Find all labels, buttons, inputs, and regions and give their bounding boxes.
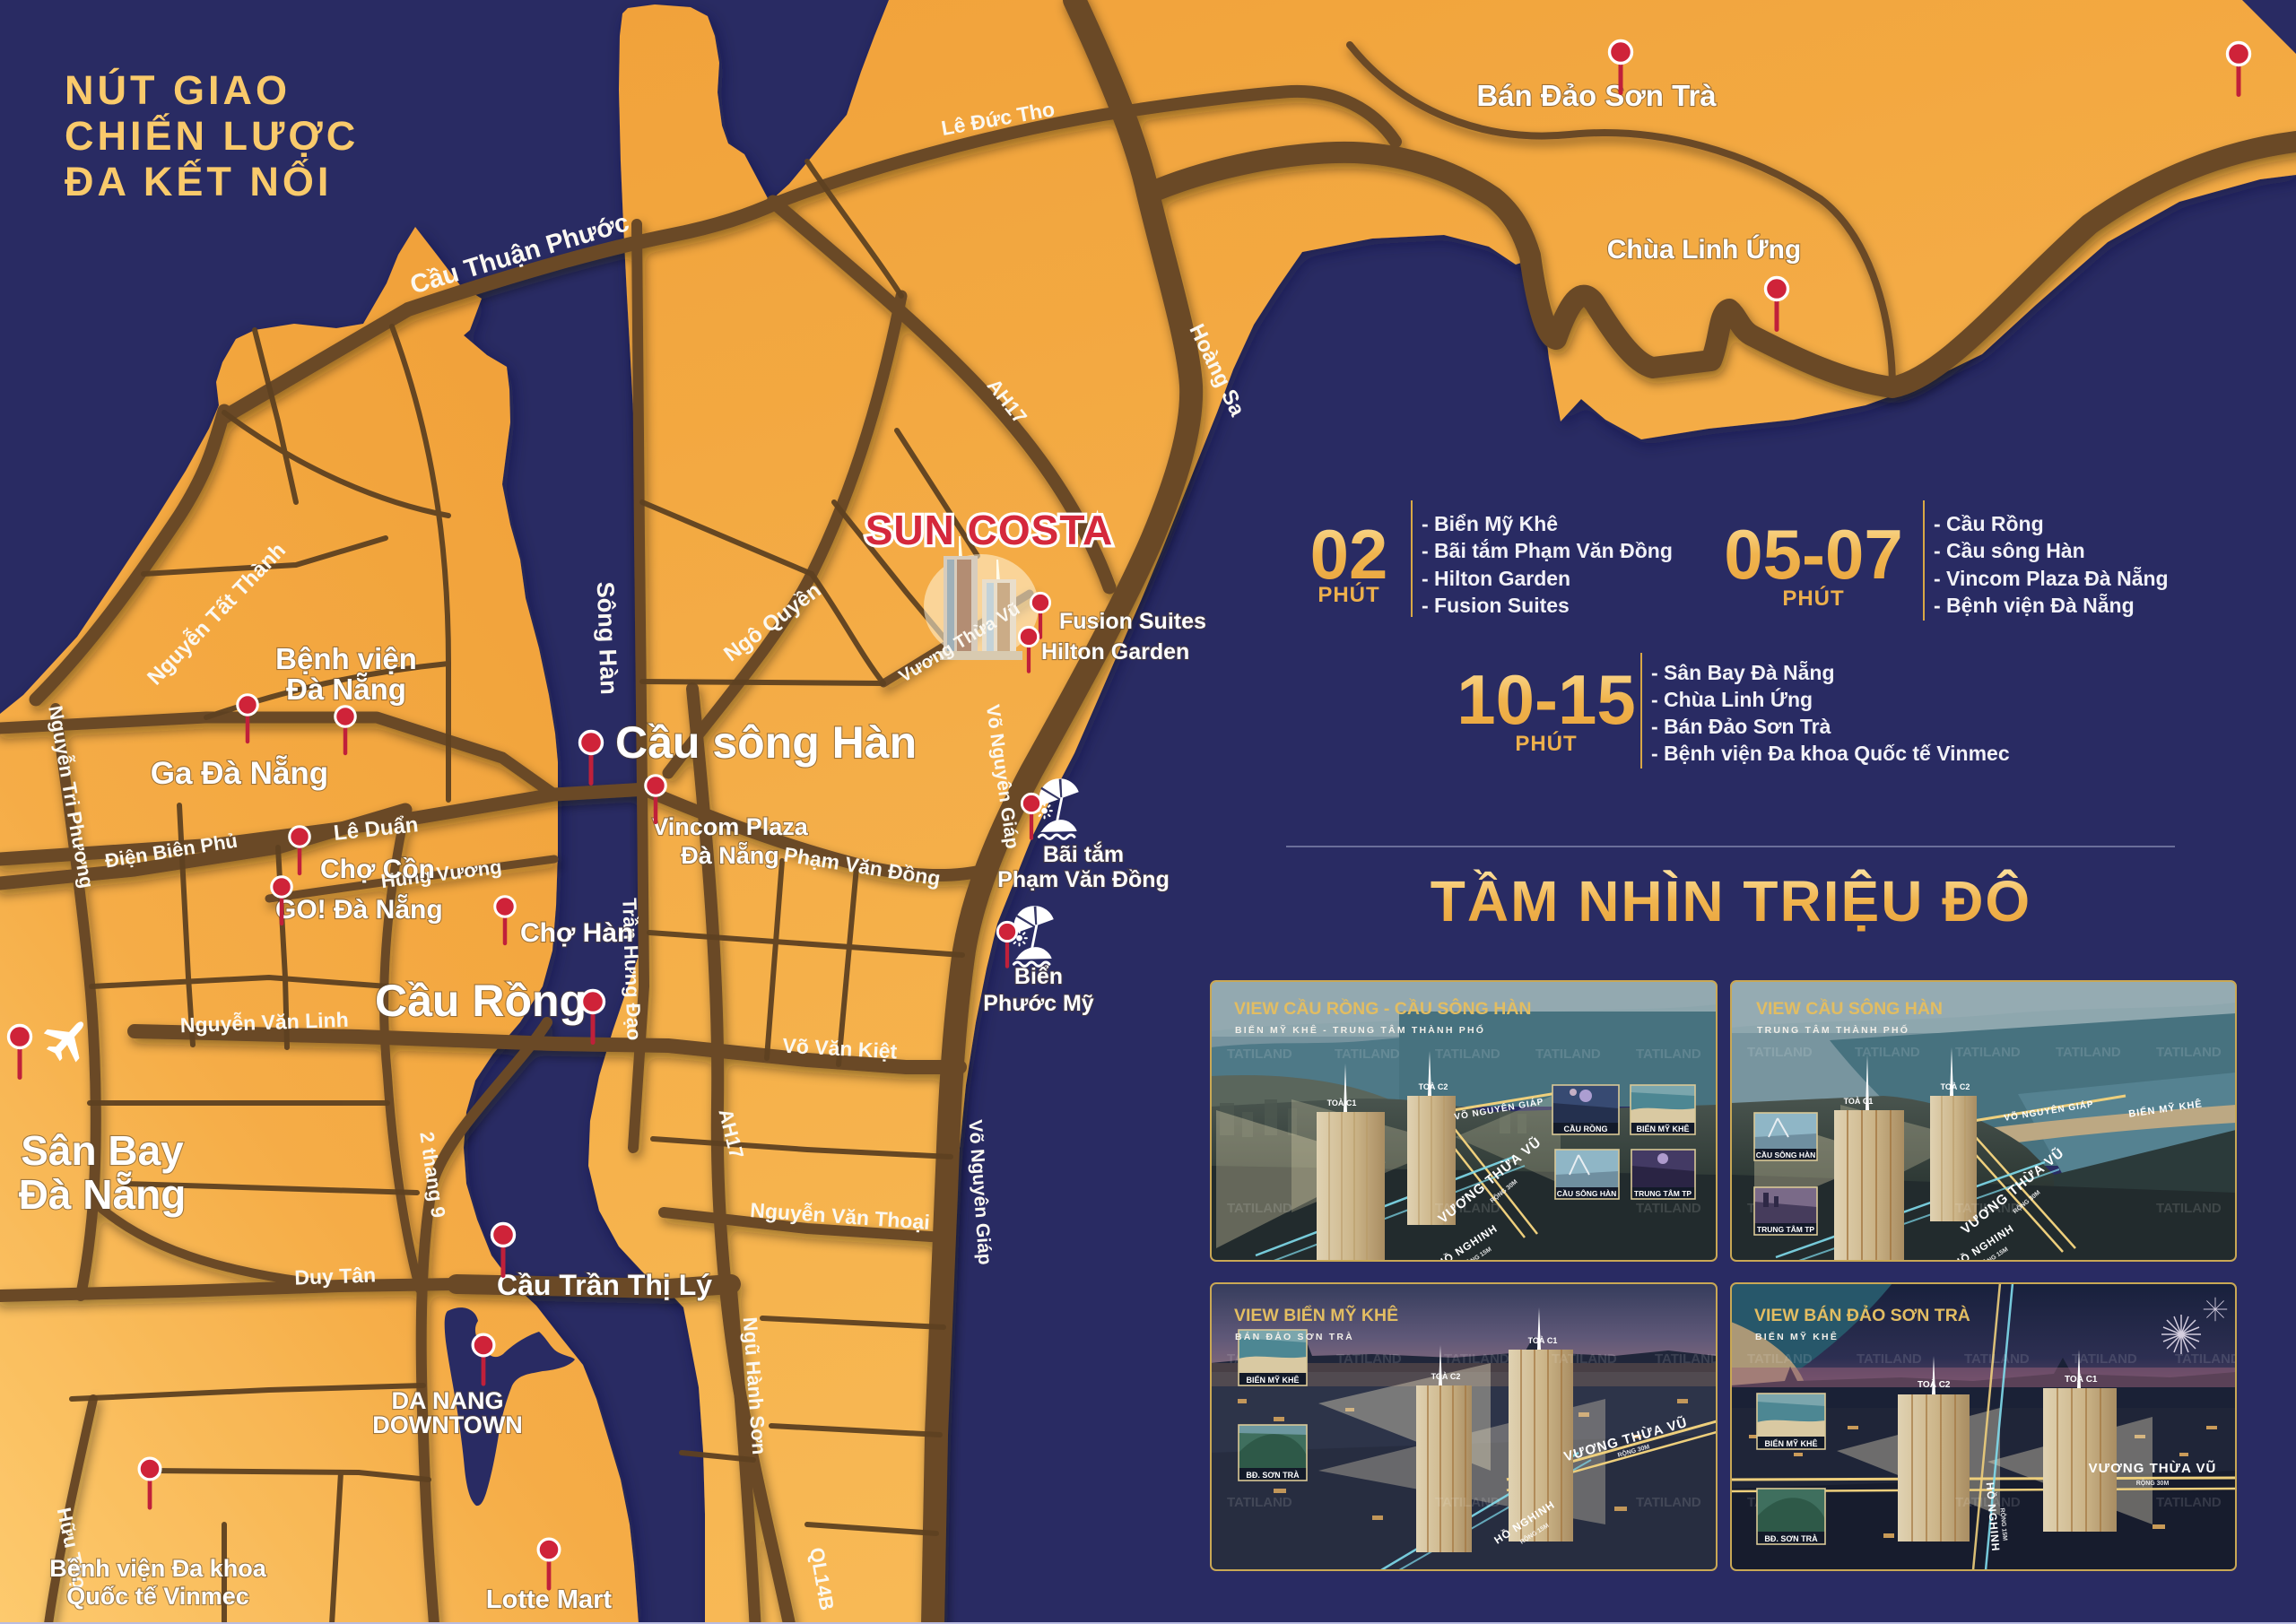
svg-text:TATILAND: TATILAND xyxy=(1227,1495,1292,1510)
svg-text:VƯƠNG THỪA VŨ: VƯƠNG THỪA VŨ xyxy=(2089,1460,2217,1476)
svg-text:TATILAND: TATILAND xyxy=(2056,1045,2121,1060)
svg-text:Bãi tắm: Bãi tắm xyxy=(1043,840,1124,867)
svg-text:TATILAND: TATILAND xyxy=(2156,1495,2222,1510)
svg-text:Chợ Cồn: Chợ Cồn xyxy=(320,855,435,884)
svg-text:PHÚT: PHÚT xyxy=(1318,582,1379,607)
svg-text:- Bán Đảo Sơn Trà: - Bán Đảo Sơn Trà xyxy=(1651,715,1831,738)
svg-text:TRUNG TÂM TP: TRUNG TÂM TP xyxy=(1757,1224,1815,1234)
svg-text:BIỂN MỸ KHÊ: BIỂN MỸ KHÊ xyxy=(1764,1438,1817,1448)
svg-text:SUN COSTA: SUN COSTA xyxy=(865,507,1114,553)
svg-text:- Vincom Plaza Đà Nẵng: - Vincom Plaza Đà Nẵng xyxy=(1934,566,2169,590)
svg-text:Bệnh viện Đa khoa: Bệnh viện Đa khoa xyxy=(49,1555,267,1582)
svg-text:BIỂN MỸ KHÊ - TRUNG TÂM THÀNH: BIỂN MỸ KHÊ - TRUNG TÂM THÀNH PHỐ xyxy=(1235,1023,1485,1036)
svg-text:Chợ Hàn: Chợ Hàn xyxy=(520,918,633,948)
svg-text:RỘNG 30M: RỘNG 30M xyxy=(2136,1479,2170,1487)
svg-text:NÚT GIAO: NÚT GIAO xyxy=(65,67,291,113)
svg-text:Đà Nẵng: Đà Nẵng xyxy=(286,672,406,706)
svg-text:CẦU RỒNG: CẦU RỒNG xyxy=(1564,1124,1608,1133)
svg-text:CHIẾN LƯỢC: CHIẾN LƯỢC xyxy=(65,113,359,159)
svg-text:TATILAND: TATILAND xyxy=(1535,1046,1601,1062)
svg-text:Đà Nẵng: Đà Nẵng xyxy=(681,840,779,869)
svg-text:TATILAND: TATILAND xyxy=(1955,1045,2021,1060)
svg-text:BĐ. SƠN TRÀ: BĐ. SƠN TRÀ xyxy=(1764,1534,1818,1543)
svg-text:TOÀ C1: TOÀ C1 xyxy=(1844,1097,1874,1106)
svg-text:TATILAND: TATILAND xyxy=(1335,1046,1400,1062)
svg-text:DA NANG: DA NANG xyxy=(392,1387,504,1414)
svg-text:Ga Đà Nẵng: Ga Đà Nẵng xyxy=(151,755,328,791)
svg-text:PHÚT: PHÚT xyxy=(1782,586,1844,611)
svg-text:PHÚT: PHÚT xyxy=(1515,731,1577,756)
svg-text:TOÀ C2: TOÀ C2 xyxy=(1419,1082,1448,1091)
svg-text:Biển: Biển xyxy=(1014,964,1063,989)
svg-text:BĐ. SƠN TRÀ: BĐ. SƠN TRÀ xyxy=(1246,1471,1300,1480)
svg-text:TOÀ C2: TOÀ C2 xyxy=(1941,1082,1970,1091)
svg-text:Hilton Garden: Hilton Garden xyxy=(1041,639,1189,664)
svg-text:Bệnh viện: Bệnh viện xyxy=(275,642,417,675)
svg-text:VIEW CẦU SÔNG HÀN: VIEW CẦU SÔNG HÀN xyxy=(1756,997,1943,1019)
svg-text:TATILAND: TATILAND xyxy=(1552,1351,1617,1367)
svg-text:TOÀ C2: TOÀ C2 xyxy=(1918,1378,1951,1390)
svg-text:TATILAND: TATILAND xyxy=(2156,1201,2222,1216)
svg-text:Duy Tân: Duy Tân xyxy=(294,1263,377,1289)
svg-text:TATILAND: TATILAND xyxy=(1655,1351,1720,1367)
svg-text:BIỂN MỸ KHÊ: BIỂN MỸ KHÊ xyxy=(1755,1331,1839,1342)
svg-text:TATILAND: TATILAND xyxy=(1747,1045,1813,1060)
svg-text:Fusion Suites: Fusion Suites xyxy=(1059,609,1206,634)
svg-text:- Bãi tắm Phạm Văn Đồng: - Bãi tắm Phạm Văn Đồng xyxy=(1422,538,1673,562)
svg-text:DOWNTOWN: DOWNTOWN xyxy=(372,1411,522,1438)
svg-text:BIỂN MỸ KHÊ: BIỂN MỸ KHÊ xyxy=(1636,1124,1689,1133)
svg-text:- Cầu Rồng: - Cầu Rồng xyxy=(1934,512,2044,535)
svg-text:TATILAND: TATILAND xyxy=(1227,1046,1292,1062)
svg-text:VIEW CẦU RỒNG - CẦU SÔNG HÀN: VIEW CẦU RỒNG - CẦU SÔNG HÀN xyxy=(1234,997,1532,1019)
svg-text:TOÀ C1: TOÀ C1 xyxy=(1327,1099,1357,1107)
svg-text:TATILAND: TATILAND xyxy=(1444,1351,1509,1367)
svg-text:Cầu Trần Thị Lý: Cầu Trần Thị Lý xyxy=(497,1269,712,1301)
svg-text:CẦU SÔNG HÀN: CẦU SÔNG HÀN xyxy=(1557,1188,1617,1198)
svg-text:Quốc tế Vinmec: Quốc tế Vinmec xyxy=(66,1583,249,1610)
svg-text:- Hilton Garden: - Hilton Garden xyxy=(1422,567,1570,590)
svg-text:TATILAND: TATILAND xyxy=(1435,1046,1500,1062)
svg-text:- Cầu sông Hàn: - Cầu sông Hàn xyxy=(1934,539,2085,562)
svg-text:TATILAND: TATILAND xyxy=(1964,1351,2030,1367)
svg-text:TATILAND: TATILAND xyxy=(1855,1045,1920,1060)
svg-text:BIỂN MỸ KHÊ: BIỂN MỸ KHÊ xyxy=(1246,1375,1299,1385)
svg-text:- Sân Bay Đà Nẵng: - Sân Bay Đà Nẵng xyxy=(1651,660,1835,684)
svg-text:- Bệnh viện Đà Nẵng: - Bệnh viện Đà Nẵng xyxy=(1934,593,2135,617)
svg-text:05-07: 05-07 xyxy=(1724,515,1903,594)
svg-text:- Biển Mỹ Khê: - Biển Mỹ Khê xyxy=(1422,512,1558,535)
svg-text:Phước Mỹ: Phước Mỹ xyxy=(983,991,1093,1016)
svg-text:TẦM NHÌN TRIỆU ĐÔ: TẦM NHÌN TRIỆU ĐÔ xyxy=(1431,868,2031,934)
svg-text:02: 02 xyxy=(1310,515,1388,594)
svg-text:VIEW BÁN ĐẢO SƠN TRÀ: VIEW BÁN ĐẢO SƠN TRÀ xyxy=(1754,1305,1970,1325)
svg-text:TRUNG TÂM TP: TRUNG TÂM TP xyxy=(1634,1188,1692,1198)
svg-text:Đà Nẵng: Đà Nẵng xyxy=(19,1171,187,1218)
svg-text:Cầu sông Hàn: Cầu sông Hàn xyxy=(615,717,917,768)
svg-text:TATILAND: TATILAND xyxy=(2072,1351,2137,1367)
svg-text:TATILAND: TATILAND xyxy=(1857,1351,1922,1367)
svg-text:TATILAND: TATILAND xyxy=(1435,1495,1500,1510)
svg-text:TATILAND: TATILAND xyxy=(1336,1351,1402,1367)
svg-text:Vincom Plaza: Vincom Plaza xyxy=(652,813,809,840)
svg-text:BÁN ĐẢO SƠN TRÀ: BÁN ĐẢO SƠN TRÀ xyxy=(1235,1331,1354,1342)
svg-text:TATILAND: TATILAND xyxy=(1747,1351,1813,1367)
svg-text:TOÀ C1: TOÀ C1 xyxy=(1528,1336,1558,1345)
svg-text:- Bệnh viện Đa khoa Quốc tế Vi: - Bệnh viện Đa khoa Quốc tế Vinmec xyxy=(1651,742,2010,765)
svg-text:VIEW BIỂN MỸ KHÊ: VIEW BIỂN MỸ KHÊ xyxy=(1234,1304,1398,1325)
svg-text:ĐA KẾT NỐI: ĐA KẾT NỐI xyxy=(65,159,332,204)
svg-text:GO! Đà Nẵng: GO! Đà Nẵng xyxy=(275,894,443,925)
svg-text:- Fusion Suites: - Fusion Suites xyxy=(1422,594,1570,617)
svg-text:Cầu Rồng: Cầu Rồng xyxy=(375,976,587,1026)
svg-text:10-15: 10-15 xyxy=(1457,660,1636,739)
svg-text:TATILAND: TATILAND xyxy=(1636,1201,1701,1216)
svg-text:TATILAND: TATILAND xyxy=(1636,1046,1701,1062)
svg-text:TATILAND: TATILAND xyxy=(2156,1045,2222,1060)
svg-text:TATILAND: TATILAND xyxy=(1636,1495,1701,1510)
svg-text:CẦU SÔNG HÀN: CẦU SÔNG HÀN xyxy=(1756,1150,1816,1159)
svg-text:Chùa Linh Ứng: Chùa Linh Ứng xyxy=(1607,234,1802,265)
svg-text:- Chùa Linh Ứng: - Chùa Linh Ứng xyxy=(1651,687,1813,711)
svg-text:TRUNG TÂM THÀNH PHỐ: TRUNG TÂM THÀNH PHỐ xyxy=(1757,1023,1909,1036)
svg-text:TATILAND: TATILAND xyxy=(2175,1351,2240,1367)
svg-text:TATILAND: TATILAND xyxy=(1227,1201,1292,1216)
svg-text:Sông Hàn: Sông Hàn xyxy=(592,581,622,695)
svg-text:TOÀ C1: TOÀ C1 xyxy=(2065,1373,2098,1385)
svg-text:Bán Đảo Sơn Trà: Bán Đảo Sơn Trà xyxy=(1476,79,1717,112)
svg-text:Phạm Văn Đồng: Phạm Văn Đồng xyxy=(997,867,1170,892)
svg-text:Sân Bay: Sân Bay xyxy=(21,1127,184,1174)
svg-text:TOÀ C2: TOÀ C2 xyxy=(1431,1372,1461,1381)
